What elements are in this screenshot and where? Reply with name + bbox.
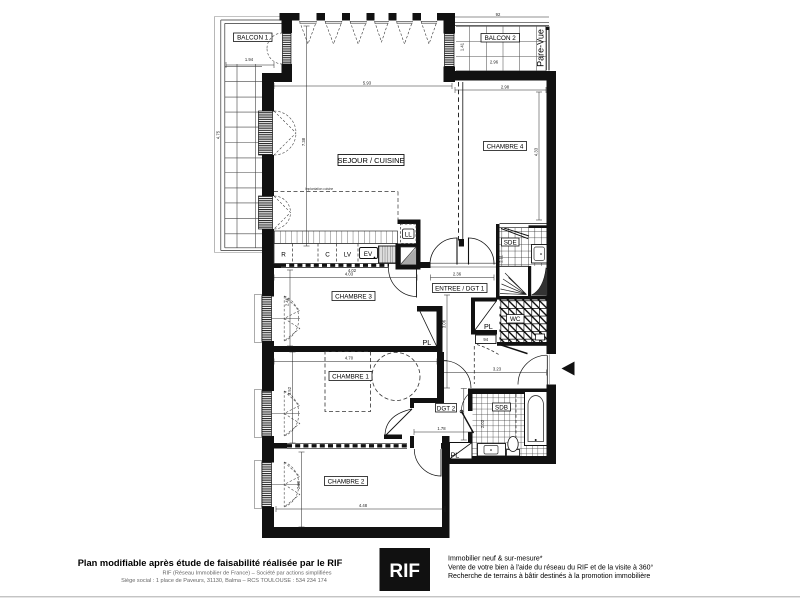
svg-text:CHAMBRE 3: CHAMBRE 3 [335, 294, 372, 301]
svg-text:2.96: 2.96 [490, 60, 499, 65]
svg-text:7.38: 7.38 [301, 137, 306, 146]
svg-text:Siège social : 1 place de Pave: Siège social : 1 place de Paveurs, 31130… [121, 578, 327, 584]
svg-text:SDB: SDB [495, 404, 508, 411]
svg-text:Plan modifiable après étude de: Plan modifiable après étude de faisabili… [78, 558, 343, 568]
svg-text:4.75: 4.75 [216, 130, 221, 139]
svg-text:R: R [281, 252, 286, 259]
svg-text:PL: PL [484, 322, 493, 331]
svg-text:1.94: 1.94 [245, 57, 254, 62]
svg-text:SDE: SDE [504, 239, 517, 246]
svg-text:Vente de votre bien à l'aide d: Vente de votre bien à l'aide du réseau d… [448, 564, 654, 572]
svg-text:2.11: 2.11 [499, 254, 504, 263]
svg-text:94: 94 [483, 337, 488, 342]
svg-text:3.06: 3.06 [442, 319, 447, 328]
svg-text:3.52: 3.52 [287, 386, 292, 395]
svg-text:4.48: 4.48 [359, 503, 368, 508]
svg-text:2.36: 2.36 [453, 272, 462, 277]
svg-text:3.23: 3.23 [493, 367, 502, 372]
svg-text:2.02: 2.02 [480, 419, 485, 428]
svg-text:EV: EV [364, 251, 373, 258]
svg-text:C: C [325, 252, 330, 259]
svg-text:WC: WC [510, 316, 521, 323]
svg-text:2.98: 2.98 [501, 85, 510, 90]
svg-text:CHAMBRE 1: CHAMBRE 1 [332, 374, 369, 381]
svg-text:PL: PL [451, 451, 460, 460]
svg-text:5.93: 5.93 [363, 81, 372, 86]
svg-text:RIF (Réseau Immobilier de Fran: RIF (Réseau Immobilier de France) – Soci… [162, 571, 331, 577]
svg-text:92: 92 [496, 12, 501, 17]
svg-text:2.46: 2.46 [285, 297, 290, 306]
svg-text:CHAMBRE 4: CHAMBRE 4 [487, 144, 524, 151]
svg-text:Immobilier neuf & sur-mesure*: Immobilier neuf & sur-mesure* [448, 556, 543, 563]
svg-text:SEJOUR / CUISINE: SEJOUR / CUISINE [337, 156, 404, 165]
svg-text:1.78: 1.78 [437, 426, 446, 431]
svg-text:BALCON 2: BALCON 2 [485, 35, 517, 42]
svg-text:PL: PL [423, 338, 432, 347]
svg-text:RIF: RIF [389, 561, 420, 582]
svg-text:LL: LL [405, 231, 413, 238]
svg-text:Implantation cuisine: Implantation cuisine [305, 187, 333, 191]
svg-text:CHAMBRE 2: CHAMBRE 2 [328, 479, 365, 486]
svg-text:4.02: 4.02 [348, 268, 357, 273]
svg-text:2.80: 2.80 [296, 480, 301, 489]
svg-text:4.33: 4.33 [534, 147, 539, 156]
svg-text:DGT 2: DGT 2 [437, 405, 456, 412]
svg-text:1.41: 1.41 [460, 42, 465, 51]
svg-text:LV: LV [344, 252, 352, 259]
svg-text:BALCON 1: BALCON 1 [237, 35, 269, 42]
svg-text:Pare-Vue: Pare-Vue [536, 29, 546, 67]
svg-text:Recherche de terrains à bâtir: Recherche de terrains à bâtir destinés à… [448, 573, 650, 580]
svg-text:ENTREE / DGT 1: ENTREE / DGT 1 [435, 286, 485, 293]
svg-text:4.70: 4.70 [345, 356, 354, 361]
